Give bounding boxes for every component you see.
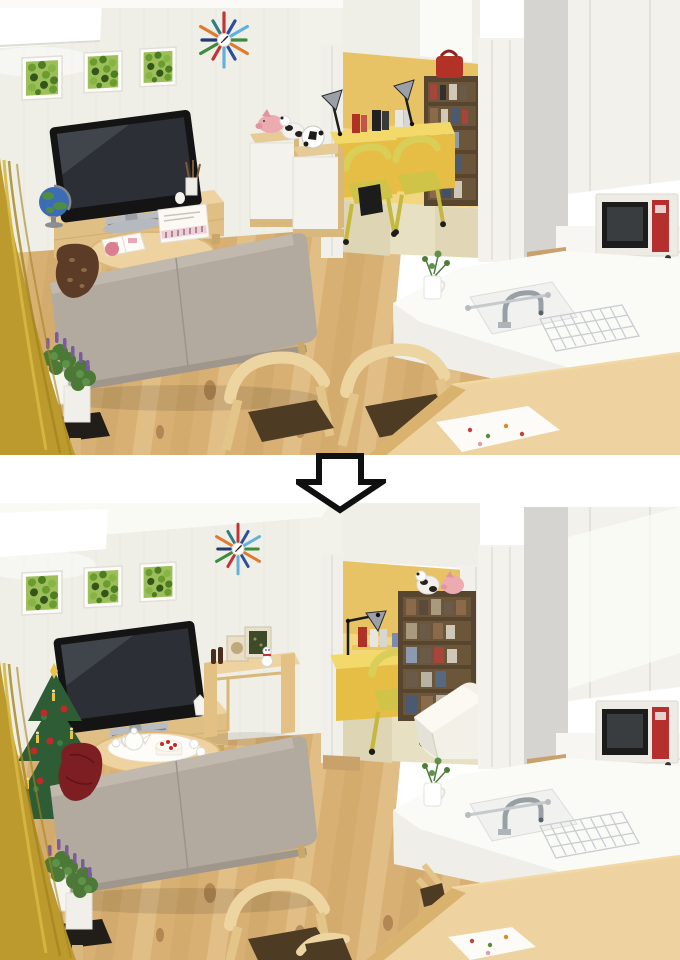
before-after-composite xyxy=(0,0,680,960)
soccer-ball xyxy=(302,126,324,148)
study-room xyxy=(321,44,480,258)
room-render-before xyxy=(0,0,680,455)
window xyxy=(0,509,108,557)
yarn-ball xyxy=(105,242,119,256)
keyboard-card xyxy=(158,204,209,243)
snowman xyxy=(262,647,273,667)
ceiling-strip xyxy=(0,0,360,8)
room-render-after xyxy=(0,503,680,960)
down-arrow-icon xyxy=(296,452,386,514)
teacup xyxy=(190,740,199,749)
threshold-floor xyxy=(323,755,360,771)
school-bag xyxy=(358,184,383,216)
creamer xyxy=(112,739,120,747)
transition-arrow xyxy=(296,452,386,514)
christmas-cake xyxy=(156,740,182,755)
